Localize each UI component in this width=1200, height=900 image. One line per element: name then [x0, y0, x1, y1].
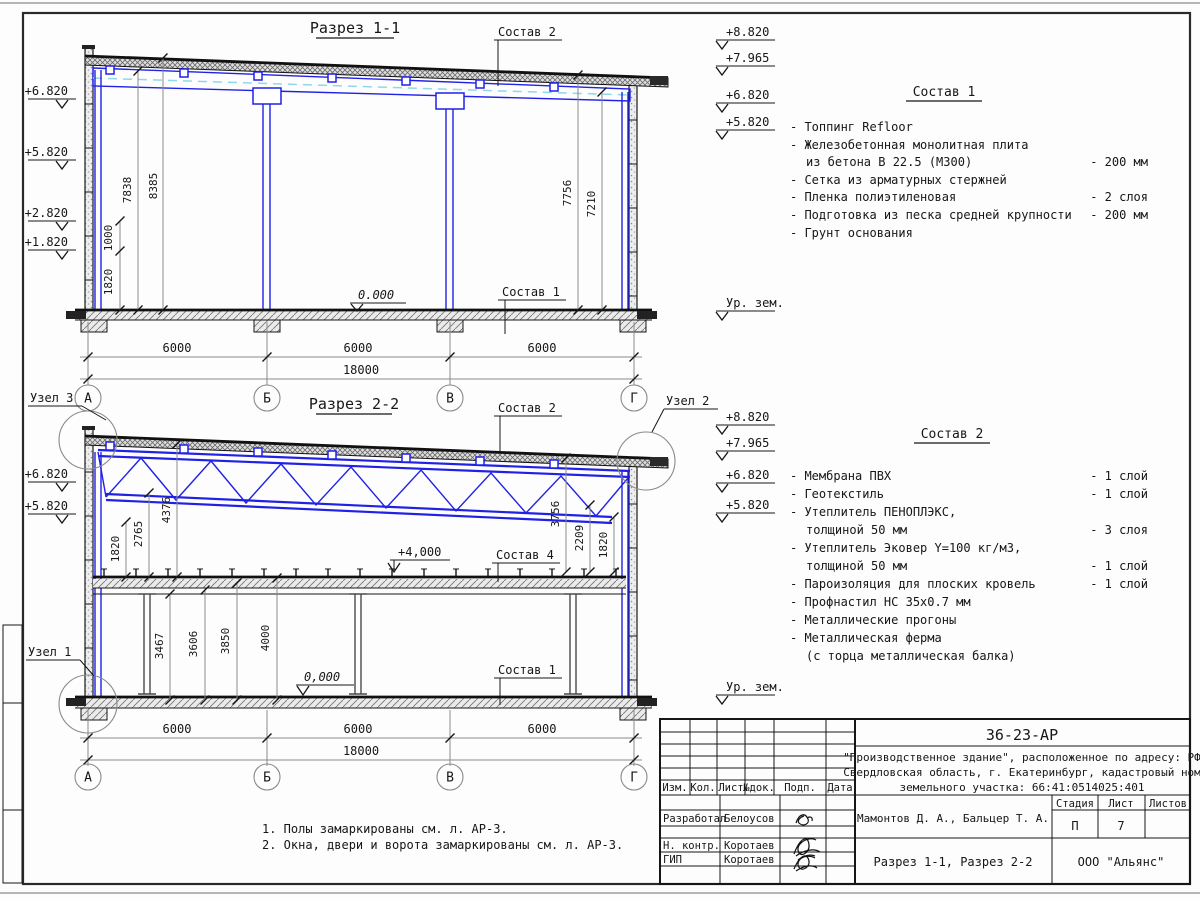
axis-label: Б [263, 771, 271, 786]
person-name: Белоусов [724, 813, 775, 825]
list-item: - Геотекстиль [790, 487, 884, 501]
parapet-cap [82, 45, 95, 49]
person-name: Коротаев [724, 854, 775, 866]
col-header: Подп. [784, 782, 816, 794]
elevation-marks-left: +6.820 +5.820 +2.820 +1.820 [25, 84, 76, 259]
zero-level-mark: 0.000 [350, 288, 406, 311]
right-wall [629, 460, 637, 700]
elevation-label: +5.820 [726, 498, 769, 512]
role-label: Н. контр. [663, 840, 720, 852]
role-label: ГИП [663, 854, 682, 866]
sostav-2-list: Состав 2 - Мембрана ПВХ - 1 слой - Геоте… [790, 427, 1148, 663]
list-item: - Подготовка из песка средней крупности [790, 208, 1072, 222]
elevation-label: +8.820 [726, 410, 769, 424]
sostav4-ref-label: Состав 4 [496, 548, 554, 562]
elevation-label: +2.820 [25, 206, 68, 220]
dim-label: 2209 [573, 525, 586, 552]
uzel3-label: Узел 3 [30, 391, 73, 405]
uzel2-label: Узел 2 [666, 394, 709, 408]
span-dim: 6000 [528, 341, 557, 355]
list-value: - 1 слой [1090, 469, 1148, 483]
section-1-title: Разрез 1-1 [310, 19, 400, 37]
ground-level-label: Ур. зем. [726, 680, 784, 694]
span-dim: 6000 [528, 722, 557, 736]
dim-label: 3756 [549, 501, 562, 528]
doc-title: Разрез 1-1, Разрез 2-2 [874, 855, 1033, 869]
note-line: 1. Полы замаркированы см. л. АР-3. [262, 822, 508, 836]
sostav-1-list: Состав 1 - Топпинг Refloor - Железобетон… [790, 85, 1148, 240]
list-value: - 1 слой [1090, 559, 1148, 573]
project-desc-line: Свердловская область, г. Екатеринбург, к… [843, 766, 1200, 779]
sheet-value: 7 [1117, 819, 1124, 833]
list-item: - Мембрана ПВХ [790, 469, 892, 483]
drawing-canvas: Разрез 1-1 [0, 0, 1200, 900]
project-desc-line: "Производственное здание", расположенное… [843, 751, 1200, 764]
axis-label: Б [263, 392, 271, 407]
grid-bubbles-row2: А Б В Г [75, 764, 647, 790]
composition-leaders: Состав 2 Состав 4 Состав 1 [492, 401, 562, 705]
roof-end-cap [650, 76, 668, 85]
elevation-label: +7.965 [726, 436, 769, 450]
sostav1-title: Состав 1 [913, 85, 976, 100]
dim-label: 4376 [160, 497, 173, 524]
list-value: - 3 слоя [1090, 523, 1148, 537]
list-value: - 1 слой [1090, 487, 1148, 501]
list-item: - Грунт основания [790, 226, 913, 240]
dim-label: 4000 [259, 625, 272, 652]
list-item: - Пленка полиэтиленовая [790, 190, 956, 204]
elevation-label: +7.965 [726, 51, 769, 65]
dim-label: 8385 [147, 173, 160, 200]
role-label: Разработал [663, 813, 726, 825]
col-header: Кол. [690, 782, 715, 794]
level-4000: +4,000 [398, 545, 441, 559]
bottom-dimensions: 6000 6000 6000 18000 [80, 710, 642, 766]
list-value: - 1 слой [1090, 577, 1148, 591]
dim-label: 1820 [109, 536, 122, 563]
sostav2-ref-label: Состав 2 [498, 25, 556, 39]
stage-value: П [1071, 819, 1078, 833]
axis-label: А [84, 771, 92, 786]
notes: 1. Полы замаркированы см. л. АР-3. 2. Ок… [262, 822, 623, 852]
elevation-label: +5.820 [726, 115, 769, 129]
right-wall [629, 78, 637, 322]
elevation-marks-right: +8.820 +7.965 +6.820 +5.820 Ур. зем. [716, 25, 784, 320]
axis-label: Г [630, 392, 638, 407]
elevation-marks-left: +6.820 +5.820 [25, 467, 76, 523]
axis-label: А [84, 392, 92, 407]
list-item: из бетона В 22.5 (М300) [806, 155, 972, 169]
dim-label: 2765 [132, 521, 145, 548]
list-item: - Топпинг Refloor [790, 120, 913, 134]
list-item: (с торца металлическая балка) [806, 649, 1016, 663]
sheets-header: Листов [1149, 798, 1187, 810]
project-desc-line: земельного участка: 66:41:0514025:401 [899, 781, 1144, 794]
list-item: - Металлические прогоны [790, 613, 956, 627]
col-header: №док. [743, 782, 775, 794]
list-item: - Железобетонная монолитная плита [790, 138, 1028, 152]
drawing-sheet: Разрез 1-1 [0, 0, 1200, 900]
list-item: - Утеплитель Эковер Y=100 кг/м3, [790, 541, 1021, 555]
list-value: - 200 мм [1090, 155, 1148, 169]
section-2-2: Разрез 2-2 [25, 391, 784, 790]
section-2-title: Разрез 2-2 [309, 395, 399, 413]
floor-slab [66, 310, 657, 332]
sostav1-ref-label: Состав 1 [502, 285, 560, 299]
uzel1-label: Узел 1 [28, 645, 71, 659]
person-name: Коротаев [724, 840, 775, 852]
note-line: 2. Окна, двери и ворота замаркированы см… [262, 838, 623, 852]
list-value: - 2 слоя [1090, 190, 1148, 204]
dim-label: 3606 [187, 631, 200, 658]
elevation-label: +5.820 [25, 145, 68, 159]
col-header: Изм. [662, 782, 687, 794]
axis-label: В [446, 771, 454, 786]
sostav2-title: Состав 2 [921, 427, 984, 442]
stage-header: Стадия [1056, 798, 1094, 810]
axis-label: Г [630, 771, 638, 786]
parapet-cap [82, 426, 95, 430]
level-marks: +4,000 0,000 [296, 545, 450, 695]
total-dim: 18000 [343, 363, 379, 377]
span-dim: 6000 [163, 341, 192, 355]
elevation-marks-right: +8.820 +7.965 +6.820 +5.820 Ур. зем. [716, 410, 784, 704]
dim-label: 3850 [219, 628, 232, 655]
company-name: ООО "Альянс" [1078, 855, 1165, 869]
ground-level-label: Ур. зем. [726, 296, 784, 310]
span-dim: 6000 [344, 722, 373, 736]
elevation-label: +1.820 [25, 235, 68, 249]
svg-text:0.000: 0.000 [358, 288, 394, 302]
dim-label: 1820 [102, 269, 115, 296]
list-item: толщиной 50 мм [806, 523, 907, 537]
dim-label: 3467 [153, 633, 166, 660]
elevation-label: +6.820 [25, 84, 68, 98]
columns [95, 70, 628, 310]
list-item: - Профнастил НС 35х0.7 мм [790, 595, 971, 609]
span-dim: 6000 [163, 722, 192, 736]
sostav2-ref-label: Состав 2 [498, 401, 556, 415]
floor-slab [66, 697, 657, 720]
elevation-label: +8.820 [726, 25, 769, 39]
doc-code: 36-23-АР [986, 726, 1058, 744]
list-item: - Сетка из арматурных стержней [790, 173, 1007, 187]
authors: Мамонтов Д. А., Бальцер Т. А. [857, 812, 1049, 825]
sheet-header: Лист [1108, 798, 1133, 810]
axis-label: В [446, 392, 454, 407]
dim-label: 7838 [121, 177, 134, 204]
signature [796, 815, 812, 825]
zero-level: 0,000 [304, 670, 340, 684]
span-dim: 6000 [344, 341, 373, 355]
col-header: Дата [827, 782, 852, 794]
list-item: - Металлическая ферма [790, 631, 942, 645]
title-block: 36-23-АР "Производственное здание", расп… [660, 719, 1200, 884]
bottom-dimensions: 6000 6000 6000 18000 [80, 322, 642, 385]
dim-label: 1000 [102, 225, 115, 252]
list-item: толщиной 50 мм [806, 559, 907, 573]
list-value: - 200 мм [1090, 208, 1148, 222]
list-item: - Утеплитель ПЕНОПЛЭКС, [790, 505, 956, 519]
col-header: Лист [718, 782, 743, 794]
elevation-label: +6.820 [25, 467, 68, 481]
roof-end-cap [650, 457, 668, 466]
dim-label: 7756 [561, 180, 574, 207]
sostav1-ref-label: Состав 1 [498, 663, 556, 677]
dim-label: 7210 [585, 191, 598, 218]
total-dim: 18000 [343, 744, 379, 758]
elevation-label: +6.820 [726, 88, 769, 102]
left-wall [85, 48, 93, 322]
elevation-label: +5.820 [25, 499, 68, 513]
section-1-1: Разрез 1-1 [25, 19, 784, 411]
elevation-label: +6.820 [726, 468, 769, 482]
dim-label: 1820 [597, 532, 610, 559]
list-item: - Пароизоляция для плоских кровель [790, 577, 1036, 591]
